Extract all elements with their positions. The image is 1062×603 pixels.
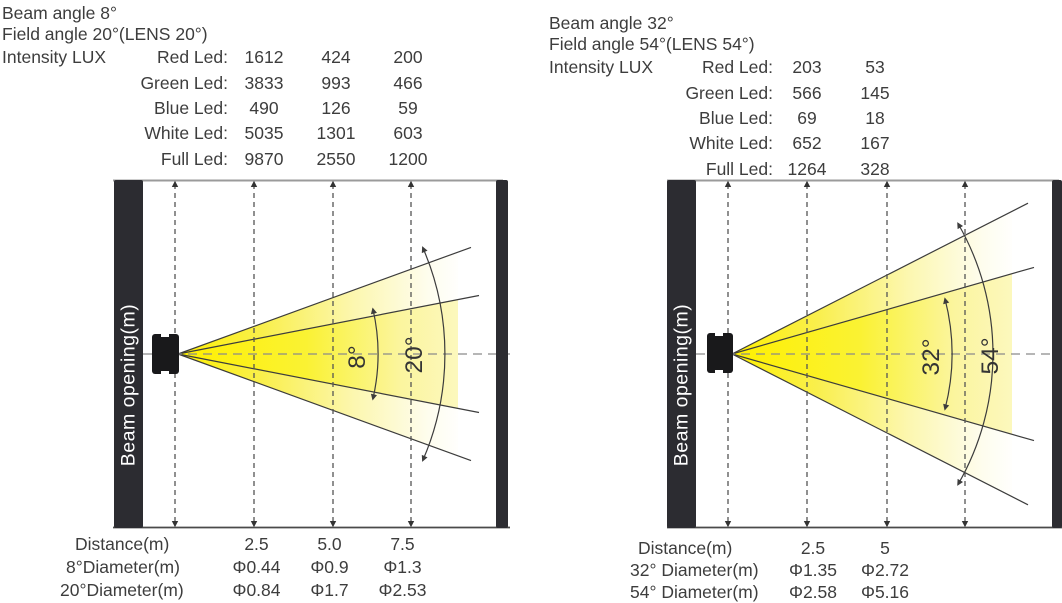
diameter-value: Φ0.9 <box>293 557 366 578</box>
led-value: 167 <box>841 133 909 154</box>
diameter-value: Φ5.16 <box>849 582 921 603</box>
fixture-icon <box>707 331 733 375</box>
led-value: 1200 <box>372 149 444 170</box>
beam-diagram-32-54: Beam opening(m) 32° 54° <box>667 178 1062 530</box>
led-intensity-row: Blue Led: 69 18 <box>549 106 909 131</box>
beam-angle-title: Beam angle 8° <box>2 3 444 24</box>
diameter-row: 20°Diameter(m) Φ0.84 Φ1.7 Φ2.53 <box>60 579 439 602</box>
led-value: 603 <box>372 123 444 144</box>
led-value: 1301 <box>300 123 372 144</box>
led-value: 200 <box>372 47 444 68</box>
led-intensity-row: Intensity LUX Red Led: 203 53 <box>549 55 909 80</box>
led-value: 5035 <box>228 123 300 144</box>
outer-angle-label: 54° <box>977 337 1004 374</box>
distance-value: 5.0 <box>293 534 366 555</box>
right-diameter-table: Distance(m) 2.5 5 32° Diameter(m) Φ1.35 … <box>625 537 921 603</box>
fixture-icon <box>152 332 179 376</box>
diameter-value: Φ1.7 <box>293 580 366 601</box>
led-value: 18 <box>841 108 909 129</box>
led-intensity-row: Full Led: 9870 2550 1200 <box>2 147 444 172</box>
field-angle-title: Field angle 20°(LENS 20°) <box>2 24 444 45</box>
led-value: 2550 <box>300 149 372 170</box>
right-wall <box>496 180 508 528</box>
led-value: 9870 <box>228 149 300 170</box>
led-intensity-row: Blue Led: 490 126 59 <box>2 96 444 121</box>
led-value: 1264 <box>773 159 841 180</box>
led-value: 203 <box>773 57 841 78</box>
distance-row: Distance(m) 2.5 5 <box>625 537 921 559</box>
led-intensity-row: Green Led: 3833 993 466 <box>2 70 444 95</box>
beam-diagram-8-20: Beam opening(m) 8° 20° <box>113 178 510 530</box>
diameter-row: 32° Diameter(m) Φ1.35 Φ2.72 <box>625 559 921 581</box>
diameter-row: 8°Diameter(m) Φ0.44 Φ0.9 Φ1.3 <box>60 556 439 579</box>
led-value: 59 <box>372 98 444 119</box>
distance-value: 7.5 <box>366 534 439 555</box>
led-intensity-row: White Led: 652 167 <box>549 131 909 156</box>
outer-angle-label: 20° <box>401 336 428 373</box>
led-value: 53 <box>841 57 909 78</box>
led-value: 328 <box>841 159 909 180</box>
led-value: 1612 <box>228 47 300 68</box>
led-value: 126 <box>300 98 372 119</box>
diameter-row-label: 54° Diameter(m) <box>625 582 777 603</box>
left-panel-header: Beam angle 8° Field angle 20°(LENS 20°) … <box>2 3 444 172</box>
led-value: 69 <box>773 108 841 129</box>
led-row-label: Red Led: <box>118 47 228 68</box>
right-panel-header: Beam angle 32° Field angle 54°(LENS 54°)… <box>549 13 909 182</box>
led-intensity-row: Intensity LUX Red Led: 1612 424 200 <box>2 45 444 70</box>
distance-label: Distance(m) <box>60 534 220 555</box>
led-row-label: Green Led: <box>665 83 773 104</box>
distance-value: 2.5 <box>220 534 293 555</box>
diameter-value: Φ2.72 <box>849 560 921 581</box>
diameter-value: Φ1.35 <box>777 560 849 581</box>
intensity-lux-label: Intensity LUX <box>2 47 118 68</box>
led-value: 424 <box>300 47 372 68</box>
led-row-label: Green Led: <box>118 73 228 94</box>
led-value: 145 <box>841 83 909 104</box>
distance-value: 2.5 <box>777 538 849 559</box>
led-row-label: White Led: <box>665 133 773 154</box>
diameter-value: Φ0.44 <box>220 557 293 578</box>
diameter-row: 54° Diameter(m) Φ2.58 Φ5.16 <box>625 581 921 603</box>
led-intensity-row: Green Led: 566 145 <box>549 80 909 105</box>
led-value: 490 <box>228 98 300 119</box>
led-row-label: Red Led: <box>665 57 773 78</box>
diameter-value: Φ0.84 <box>220 580 293 601</box>
diameter-row-label: 20°Diameter(m) <box>60 580 220 601</box>
intensity-lux-label: Intensity LUX <box>549 57 665 78</box>
right-wall <box>1052 180 1062 528</box>
diameter-row-label: 32° Diameter(m) <box>625 560 777 581</box>
distance-row: Distance(m) 2.5 5.0 7.5 <box>60 533 439 556</box>
led-row-label: Full Led: <box>665 159 773 180</box>
led-row-label: Full Led: <box>118 149 228 170</box>
led-row-label: Blue Led: <box>118 98 228 119</box>
distance-label: Distance(m) <box>625 538 777 559</box>
field-angle-title: Field angle 54°(LENS 54°) <box>549 34 909 55</box>
led-value: 466 <box>372 73 444 94</box>
diameter-value: Φ2.53 <box>366 580 439 601</box>
distance-value: 5 <box>849 538 921 559</box>
diameter-value: Φ1.3 <box>366 557 439 578</box>
led-row-label: White Led: <box>118 123 228 144</box>
beam-opening-axis-label: Beam opening(m) <box>671 304 693 467</box>
left-diameter-table: Distance(m) 2.5 5.0 7.5 8°Diameter(m) Φ0… <box>60 533 439 602</box>
led-value: 993 <box>300 73 372 94</box>
diameter-row-label: 8°Diameter(m) <box>60 557 220 578</box>
led-value: 3833 <box>228 73 300 94</box>
led-value: 566 <box>773 83 841 104</box>
inner-angle-label: 8° <box>344 345 371 368</box>
beam-opening-axis-label: Beam opening(m) <box>118 304 140 467</box>
beam-angle-title: Beam angle 32° <box>549 13 909 34</box>
led-row-label: Blue Led: <box>665 108 773 129</box>
led-value: 652 <box>773 133 841 154</box>
inner-angle-label: 32° <box>918 338 945 375</box>
diameter-value: Φ2.58 <box>777 582 849 603</box>
led-intensity-row: White Led: 5035 1301 603 <box>2 121 444 146</box>
